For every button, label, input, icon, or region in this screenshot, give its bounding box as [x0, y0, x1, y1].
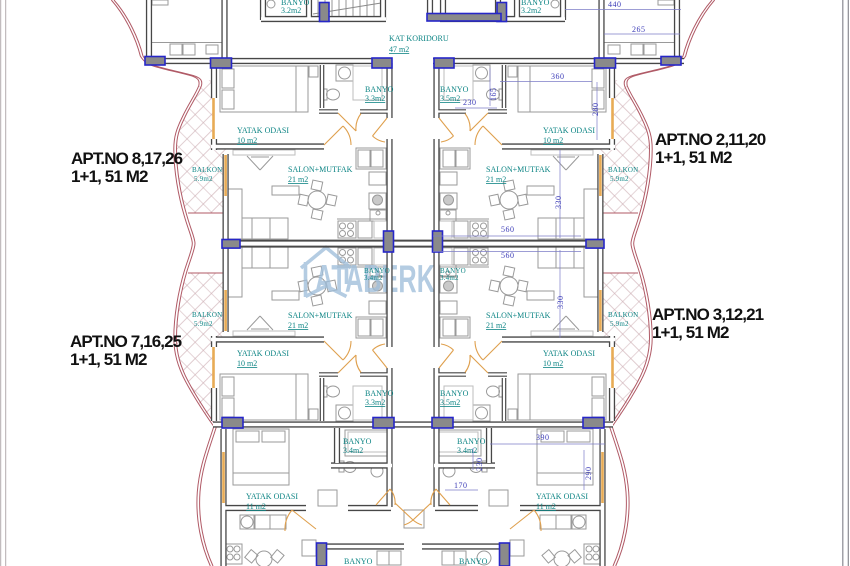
svg-text:SALON+MUTFAK: SALON+MUTFAK — [288, 165, 353, 174]
svg-text:YATAK ODASI: YATAK ODASI — [543, 126, 595, 135]
svg-text:10 m2: 10 m2 — [543, 359, 563, 368]
svg-text:3.3m2: 3.3m2 — [365, 94, 385, 103]
svg-text:3.2m2: 3.2m2 — [281, 6, 301, 15]
svg-text:560: 560 — [501, 251, 515, 260]
svg-text:360: 360 — [551, 72, 565, 81]
svg-text:47 m2: 47 m2 — [389, 45, 409, 54]
svg-text:170: 170 — [454, 481, 468, 490]
svg-text:3.4m2: 3.4m2 — [440, 274, 459, 282]
svg-text:BANYO: BANYO — [343, 437, 372, 446]
svg-text:5.9m2: 5.9m2 — [610, 320, 629, 328]
svg-text:YATAK ODASI: YATAK ODASI — [237, 349, 289, 358]
svg-text:BANYO: BANYO — [459, 557, 488, 566]
svg-text:230: 230 — [475, 458, 484, 472]
svg-text:BANYO: BANYO — [365, 389, 394, 398]
svg-text:290: 290 — [584, 467, 593, 481]
svg-text:APT.NO 3,12,21: APT.NO 3,12,21 — [652, 305, 764, 324]
svg-text:1+1, 51 M2: 1+1, 51 M2 — [655, 148, 732, 167]
svg-text:3.4m2: 3.4m2 — [457, 446, 477, 455]
svg-text:APT.NO 7,16,25: APT.NO 7,16,25 — [70, 332, 182, 351]
svg-text:SALON+MUTFAK: SALON+MUTFAK — [486, 165, 551, 174]
svg-text:3.4m2: 3.4m2 — [343, 446, 363, 455]
svg-text:5.9m2: 5.9m2 — [194, 320, 213, 328]
svg-text:330: 330 — [554, 196, 563, 210]
svg-text:YATAK ODASI: YATAK ODASI — [237, 126, 289, 135]
svg-text:SALON+MUTFAK: SALON+MUTFAK — [486, 311, 551, 320]
svg-text:3.2m2: 3.2m2 — [521, 6, 541, 15]
svg-text:SALON+MUTFAK: SALON+MUTFAK — [288, 311, 353, 320]
svg-text:10 m2: 10 m2 — [543, 136, 563, 145]
svg-text:10 m2: 10 m2 — [237, 136, 257, 145]
svg-text:1+1, 51 M2: 1+1, 51 M2 — [70, 350, 147, 369]
svg-text:BANYO: BANYO — [440, 85, 469, 94]
svg-text:BALKON: BALKON — [192, 166, 222, 174]
svg-text:280: 280 — [591, 103, 600, 117]
svg-text:BANYO: BANYO — [344, 557, 373, 566]
svg-text:YATAK ODASI: YATAK ODASI — [543, 349, 595, 358]
svg-text:265: 265 — [632, 25, 646, 34]
svg-text:165: 165 — [489, 88, 498, 102]
svg-text:3.3m2: 3.3m2 — [365, 398, 385, 407]
svg-text:230: 230 — [463, 98, 477, 107]
svg-text:APT.NO 8,17,26: APT.NO 8,17,26 — [71, 149, 183, 168]
svg-text:KAT KORIDORU: KAT KORIDORU — [389, 34, 449, 43]
svg-text:BANYO: BANYO — [365, 85, 394, 94]
svg-text:BALKON: BALKON — [608, 311, 638, 319]
svg-text:3.5m2: 3.5m2 — [440, 94, 460, 103]
svg-text:330: 330 — [556, 296, 565, 310]
svg-text:BANYO: BANYO — [440, 389, 469, 398]
svg-text:1+1, 51 M2: 1+1, 51 M2 — [71, 167, 148, 186]
svg-text:APT.NO 2,11,20: APT.NO 2,11,20 — [655, 130, 766, 149]
svg-text:21 m2: 21 m2 — [486, 175, 506, 184]
svg-text:YATAK ODASI: YATAK ODASI — [246, 492, 298, 501]
svg-text:1+1, 51 M2: 1+1, 51 M2 — [652, 323, 729, 342]
svg-text:21 m2: 21 m2 — [288, 175, 308, 184]
svg-text:3.4m2: 3.4m2 — [364, 274, 383, 282]
svg-text:5.9m2: 5.9m2 — [194, 175, 213, 183]
svg-text:BALKON: BALKON — [608, 166, 638, 174]
svg-text:440: 440 — [608, 0, 622, 9]
svg-text:BALKON: BALKON — [192, 311, 222, 319]
svg-text:11 m2: 11 m2 — [246, 502, 266, 511]
svg-text:YATAK ODASI: YATAK ODASI — [536, 492, 588, 501]
svg-text:21 m2: 21 m2 — [486, 321, 506, 330]
svg-text:3.5m2: 3.5m2 — [440, 398, 460, 407]
svg-text:BANYO: BANYO — [457, 437, 486, 446]
svg-text:10 m2: 10 m2 — [237, 359, 257, 368]
svg-text:390: 390 — [536, 433, 550, 442]
svg-text:21 m2: 21 m2 — [288, 321, 308, 330]
svg-text:11 m2: 11 m2 — [536, 502, 556, 511]
svg-text:5.9m2: 5.9m2 — [610, 175, 629, 183]
svg-text:560: 560 — [501, 225, 515, 234]
